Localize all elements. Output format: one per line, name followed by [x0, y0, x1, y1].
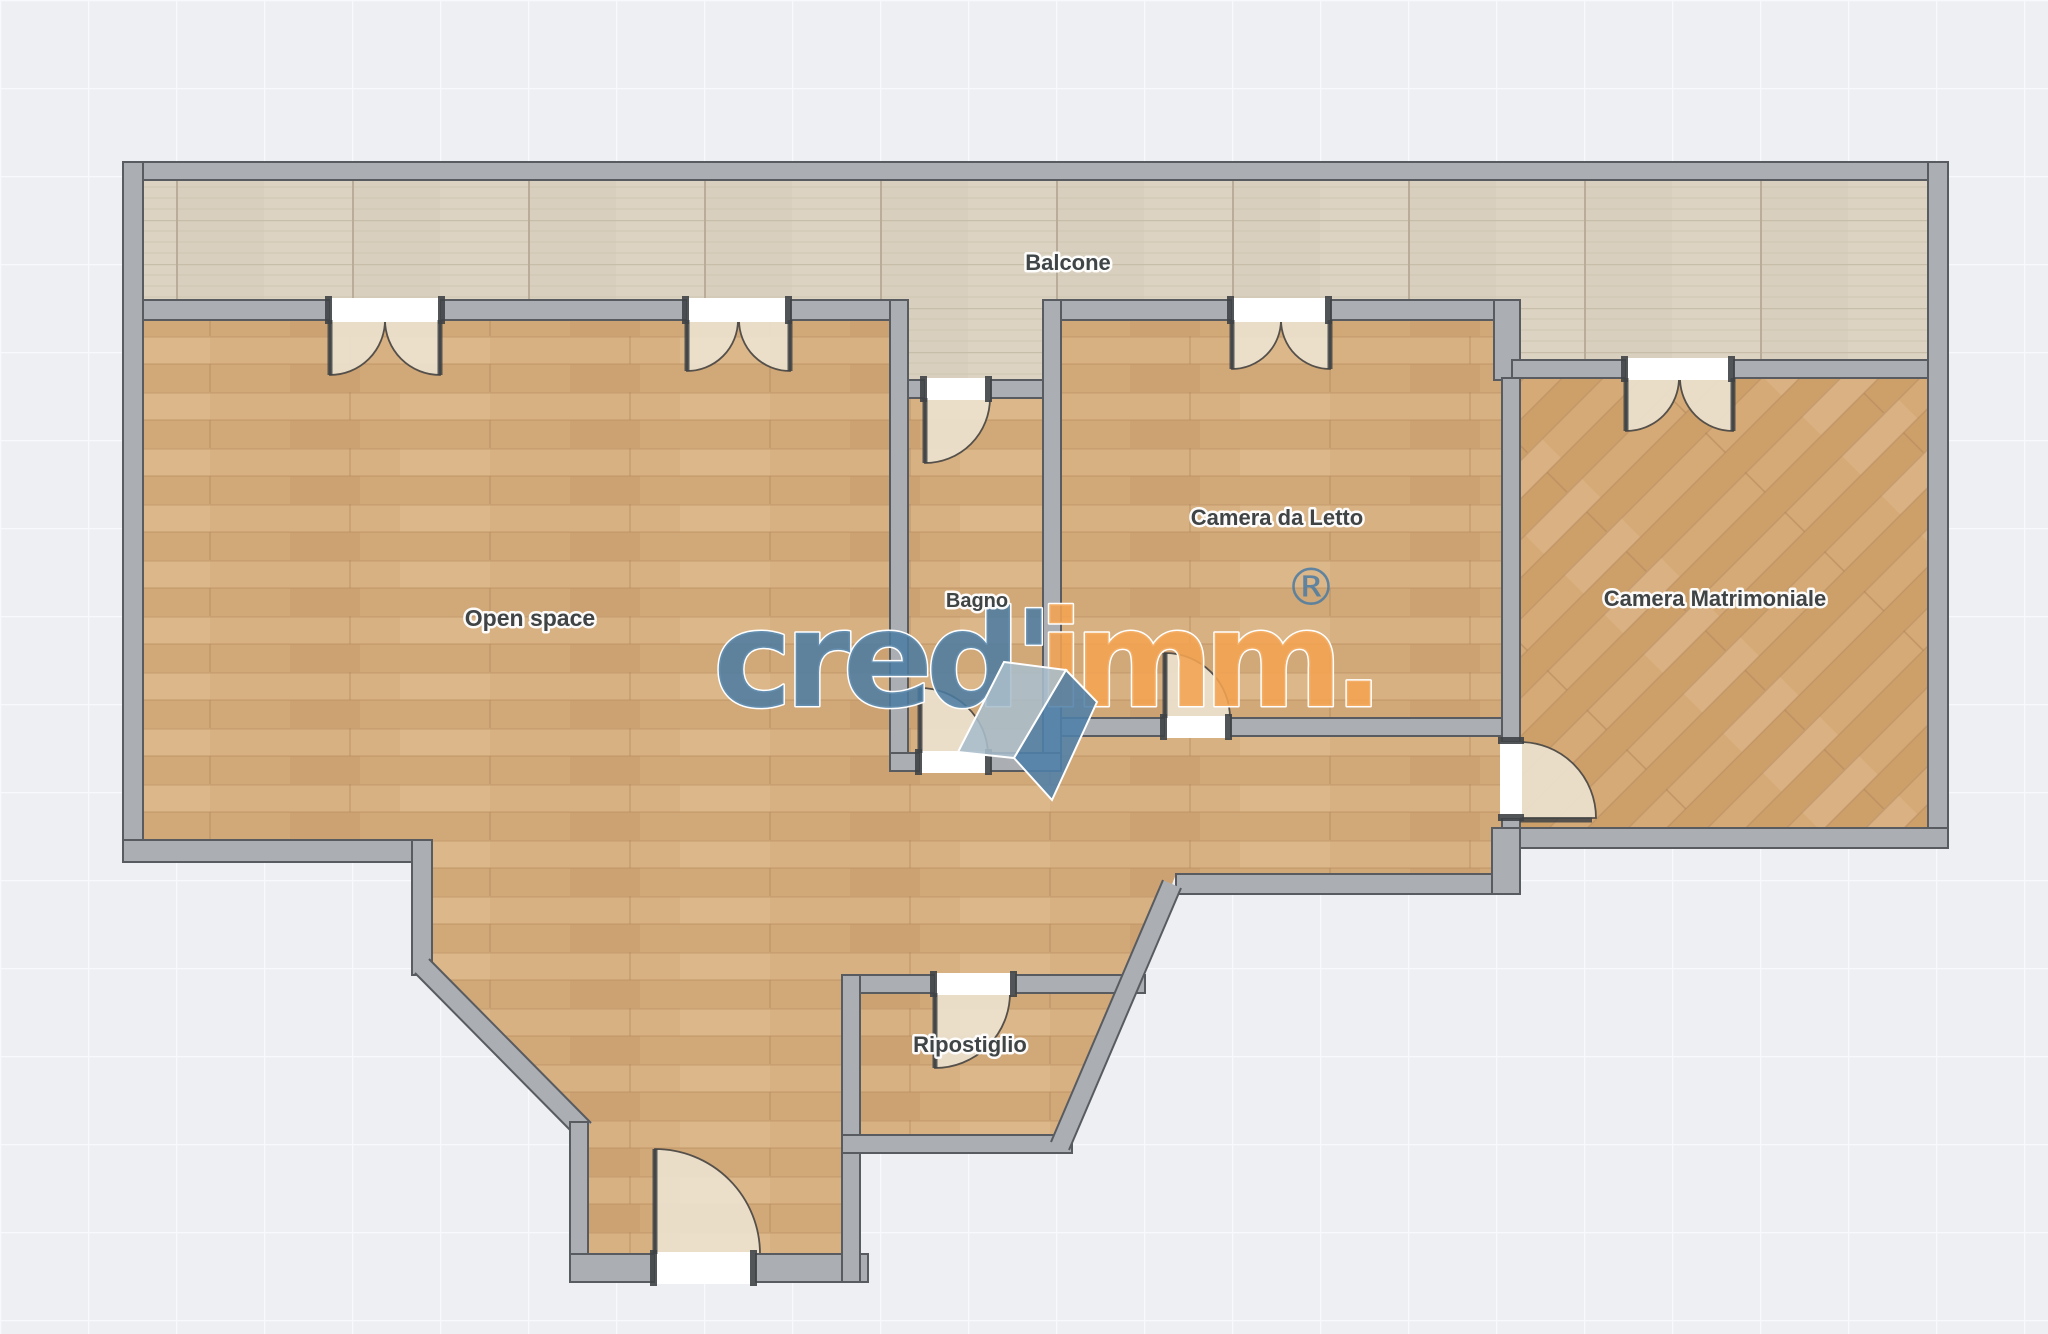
door-opening	[935, 973, 1015, 995]
wall-segment	[1928, 162, 1948, 848]
door-opening	[330, 298, 440, 322]
wall-segment	[412, 840, 432, 975]
wall-segment	[1510, 828, 1948, 848]
room-label-bagno: Bagno	[946, 590, 1008, 612]
room-label-open-space: Open space	[465, 605, 595, 631]
wall-segment	[842, 1135, 1072, 1153]
door-opening	[925, 378, 990, 400]
wall-segment	[1043, 300, 1232, 320]
wall-segment	[143, 300, 330, 320]
wall-segment	[1512, 360, 1626, 378]
wall-segment	[440, 300, 687, 320]
wall-segment	[860, 975, 935, 993]
wall-segment	[1330, 300, 1494, 320]
floor-plan-svg: cred' imm. ® Balcone Open space Bagno Ca…	[0, 0, 2048, 1334]
wall-segment	[1176, 874, 1510, 894]
registered-trademark-icon: ®	[1285, 558, 1337, 618]
wall-segment	[990, 380, 1043, 398]
wall-segment	[570, 1254, 655, 1282]
room-label-ripostiglio: Ripostiglio	[913, 1032, 1027, 1057]
wall-segment	[1492, 828, 1520, 894]
wall-segment	[790, 300, 890, 320]
door-opening	[655, 1252, 755, 1284]
wall-segment	[123, 840, 432, 862]
door-opening	[1232, 298, 1330, 322]
floor-plan-canvas: cred' imm. ® Balcone Open space Bagno Ca…	[0, 0, 2048, 1334]
door-opening	[1626, 358, 1733, 380]
wall-segment	[842, 975, 860, 1282]
room-label-balcone: Balcone	[1025, 250, 1111, 275]
wall-segment	[123, 162, 1948, 180]
door-opening	[1500, 742, 1522, 818]
wall-segment	[1733, 360, 1928, 378]
room-label-camera-matrimoniale: Camera Matrimoniale	[1604, 586, 1827, 611]
wall-segment	[123, 162, 143, 862]
room-label-camera-da-letto: Camera da Letto	[1191, 505, 1363, 530]
door-opening	[687, 298, 790, 322]
wall-segment	[1502, 378, 1520, 742]
